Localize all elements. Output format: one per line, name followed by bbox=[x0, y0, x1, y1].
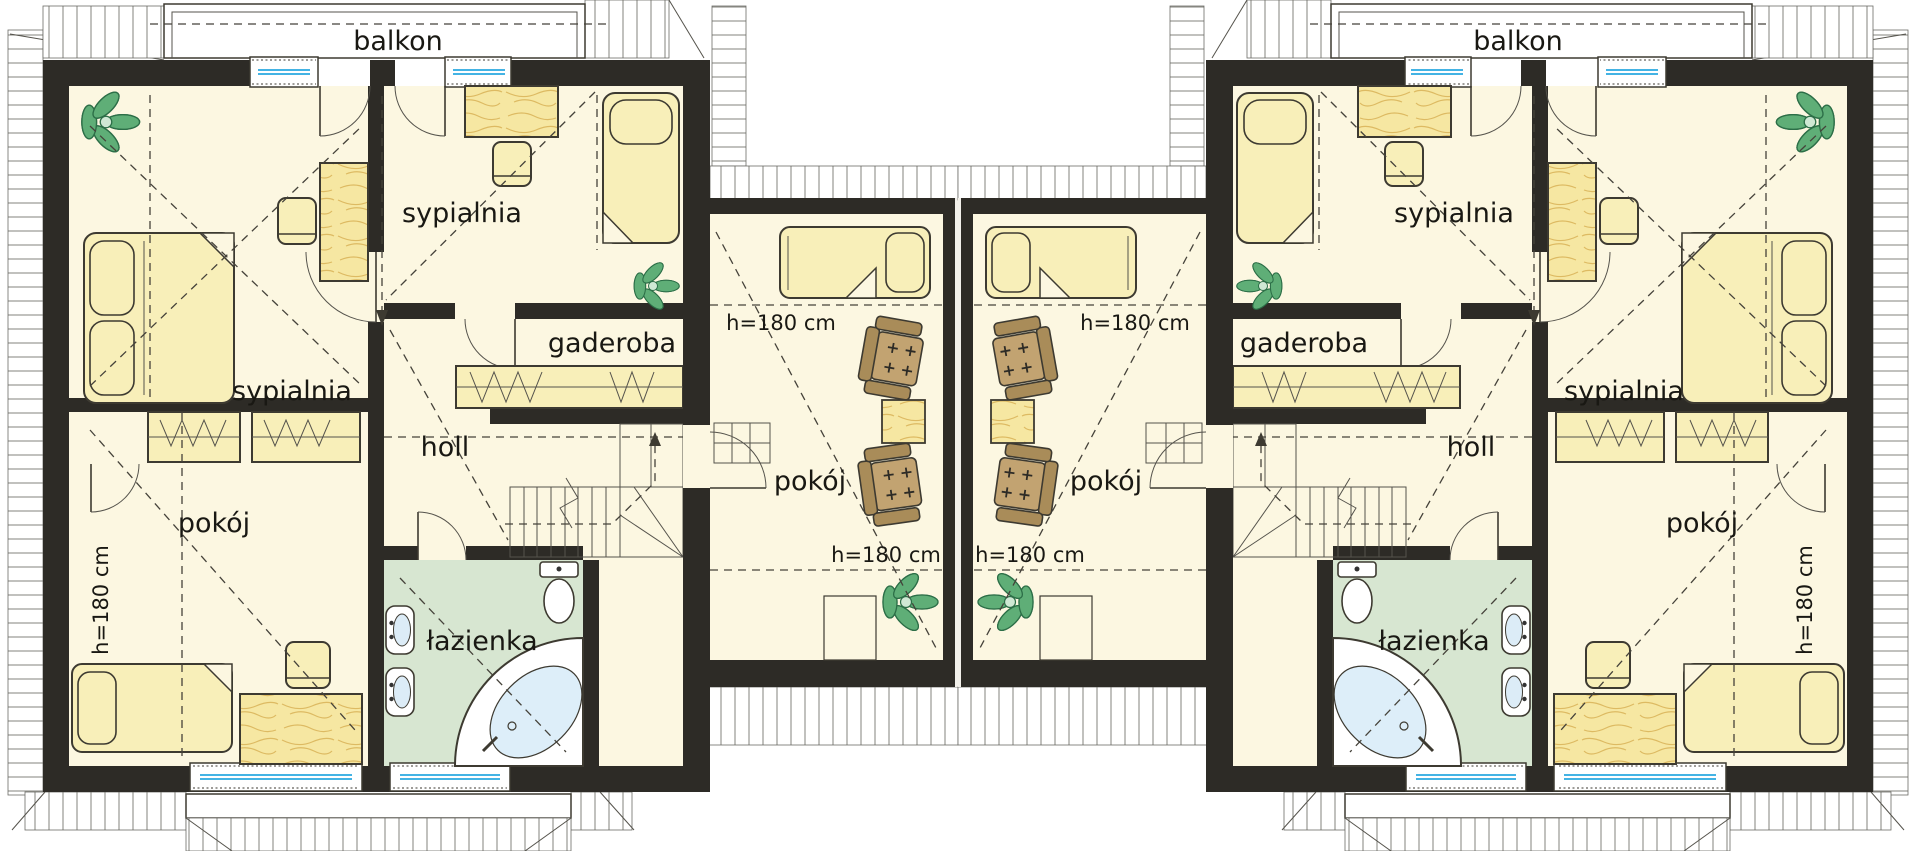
label-dressing-room-right: gaderoba bbox=[1240, 328, 1368, 359]
label-height-middle-right-top: h=180 cm bbox=[1080, 311, 1190, 335]
label-height-right-unit: h=180 cm bbox=[1793, 545, 1817, 655]
label-room-right: pokój bbox=[1666, 508, 1738, 539]
label-room-left: pokój bbox=[178, 508, 250, 539]
label-bathroom-left: łazienka bbox=[426, 626, 537, 657]
label-room-middle-left: pokój bbox=[774, 466, 846, 497]
label-height-left-unit: h=180 cm bbox=[89, 545, 113, 655]
floor-plan-page: balkon sypialnia sypialnia gaderoba holl… bbox=[0, 0, 1920, 851]
label-height-middle-left-top: h=180 cm bbox=[726, 311, 836, 335]
floor-plan-canvas: balkon sypialnia sypialnia gaderoba holl… bbox=[0, 0, 1920, 851]
label-hall-left: holl bbox=[421, 432, 470, 463]
label-bedroom-right-2: sypialnia bbox=[1394, 198, 1514, 229]
label-height-middle-right-bottom: h=180 cm bbox=[975, 543, 1085, 567]
label-bedroom-left-2: sypialnia bbox=[402, 198, 522, 229]
right-unit-drawing bbox=[958, 0, 1908, 851]
label-balcony-right: balkon bbox=[1473, 26, 1563, 57]
label-bedroom-right-1: sypialnia bbox=[1564, 376, 1684, 407]
label-balcony-left: balkon bbox=[353, 26, 443, 57]
label-room-middle-right: pokój bbox=[1070, 466, 1142, 497]
label-bedroom-left-1: sypialnia bbox=[232, 376, 352, 407]
label-height-middle-left-bottom: h=180 cm bbox=[831, 543, 941, 567]
left-unit-drawing bbox=[8, 0, 958, 851]
label-hall-right: holl bbox=[1447, 432, 1496, 463]
label-dressing-room-left: gaderoba bbox=[548, 328, 676, 359]
label-bathroom-right: łazienka bbox=[1378, 626, 1489, 657]
